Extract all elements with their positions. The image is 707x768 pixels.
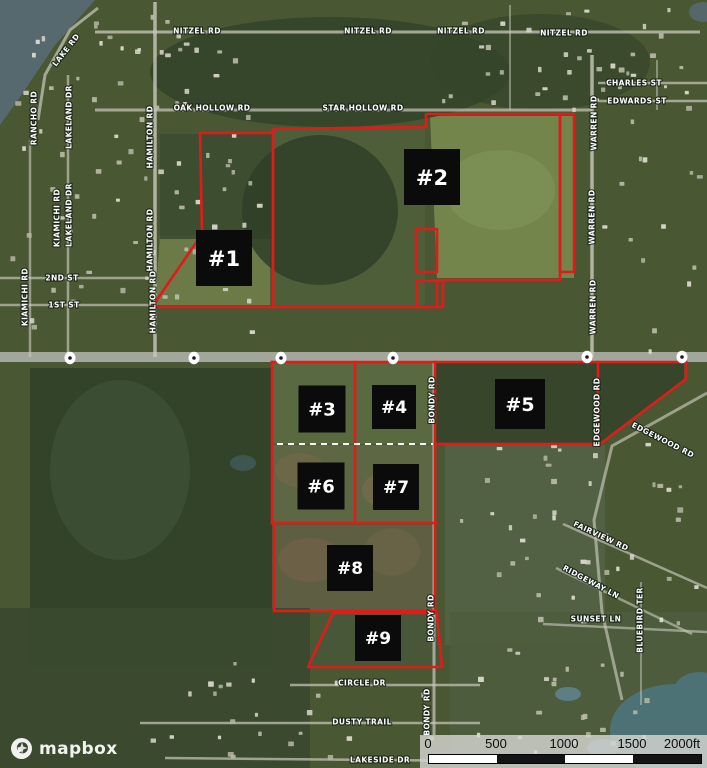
building [79,285,84,289]
building [213,692,217,696]
terrain-patch [445,150,555,230]
road-label: CIRCLE DR [338,679,386,688]
building [117,161,122,165]
building [27,233,32,238]
building [32,325,37,330]
building [583,714,588,719]
building [114,135,118,138]
building [697,175,703,179]
terrain-patch [0,0,95,125]
building [165,53,171,57]
building [151,739,156,743]
building [60,152,65,157]
building [158,170,164,175]
building [217,50,222,53]
road-label: 2ND ST [45,274,79,283]
building [586,560,591,564]
building [520,539,525,543]
building [223,187,227,191]
road-label: 1ST ST [48,301,80,310]
map-canvas[interactable]: NITZEL RDNITZEL RDNITZEL RDNITZEL RDCHAR… [0,0,707,768]
building [679,66,683,69]
building [228,159,232,163]
building [536,593,541,597]
building [657,484,663,488]
building [288,742,294,747]
building [649,349,652,354]
building [92,214,96,219]
map-overlay: NITZEL RDNITZEL RDNITZEL RDNITZEL RDCHAR… [0,0,707,768]
road-label: WARREN RD [589,280,598,335]
building [542,87,547,90]
building [526,28,531,33]
building [193,249,197,254]
building [214,74,220,77]
route-shield-icon [192,356,196,360]
building [140,117,145,122]
road-label: HAMILTON RD [146,209,155,272]
building [563,95,568,100]
building [690,171,694,175]
route-shield-icon [279,356,283,360]
building [178,48,182,52]
building [108,36,113,40]
building [179,206,184,210]
building [685,91,689,95]
building [486,72,491,76]
parcel-label: #4 [381,398,407,418]
route-shield-icon [680,355,684,359]
building [667,8,670,12]
building [51,288,56,293]
road-label: EDGEWOOD RD [630,420,695,459]
road-label: CHARLES ST [606,79,662,88]
building [497,447,503,450]
building [660,618,664,623]
building [650,53,656,58]
building [631,74,636,77]
building [552,682,557,686]
building [604,570,609,575]
road-label: NITZEL RD [344,27,392,36]
building [316,694,321,698]
building [587,49,592,53]
building [677,507,683,512]
building [544,677,549,681]
building [661,224,666,229]
road-label: BLUEBIRD TER [636,587,645,652]
building [491,100,496,105]
terrain-patch [555,687,581,701]
building [22,146,26,151]
building [230,719,235,724]
scale-tick: 1500 [618,736,647,751]
building [208,681,214,686]
building [184,43,190,46]
building [120,288,125,293]
building [593,453,598,458]
building [219,685,223,689]
building [631,53,636,57]
road-label: WARREN RD [588,190,597,245]
building [643,157,648,162]
building [257,204,263,208]
building [155,106,159,110]
building [163,295,168,298]
building [76,77,79,81]
road-label: NITZEL RD [173,27,221,36]
building [258,732,262,736]
building [515,652,520,655]
building [196,200,201,204]
terrain-patch [242,135,398,285]
building [558,449,562,452]
building [462,22,468,26]
building [135,49,141,54]
route-shield-icon [68,356,72,360]
building [620,182,625,186]
building [226,164,231,167]
building [643,24,646,29]
parcel-label: #6 [307,477,335,498]
scale-tick: 1000 [550,736,579,751]
parcel-label: #8 [337,559,363,579]
road-label: EDWARDS ST [607,97,667,106]
building [206,153,209,158]
road-label: HAMILTON RD [149,271,158,334]
building [644,698,649,703]
building [116,199,120,202]
building [151,15,154,20]
building [233,662,236,666]
building [160,50,164,55]
building [212,225,218,230]
building [597,67,603,71]
building [533,514,537,519]
building [223,288,228,291]
scale-tick: 0 [424,736,431,751]
road-label: EDGEWOOD RD [593,378,602,447]
building [133,241,138,244]
road-label: BONDY RD [427,594,436,641]
building [552,515,556,520]
road-label: NITZEL RD [540,29,588,38]
building [536,711,542,715]
building [572,108,576,112]
parcel-label: #7 [383,478,409,498]
building [620,672,623,677]
building [626,71,629,75]
parcel-label: #5 [505,394,534,416]
building [525,557,529,560]
building [507,648,512,651]
road-label: KIAMICHI RD [21,268,30,326]
scale-bar-segments [428,754,702,764]
building [639,157,642,162]
building [551,479,557,484]
building [692,266,696,270]
building [510,561,515,565]
building [307,710,313,715]
route-shield-icon [391,356,395,360]
building [449,94,453,98]
building [676,518,681,522]
building [679,485,682,488]
building [600,728,606,732]
building [15,101,21,105]
building [23,91,28,95]
building [479,45,484,48]
building [94,22,99,26]
road-label: DUSTY TRAIL [332,718,392,727]
building [630,554,634,559]
mapbox-logo-text: mapbox [39,739,118,759]
building [535,92,540,96]
building [460,519,463,523]
scale-segment [497,755,565,763]
building [478,677,484,682]
building [188,691,192,696]
scale-tick: 2000ft [664,736,700,751]
building [177,161,181,166]
building [246,115,251,120]
building [252,679,255,683]
building [39,129,42,133]
route-shield-icon [585,355,589,359]
building [566,12,571,15]
scale-bar: 0500100015002000ft [420,735,707,768]
building [564,52,568,57]
building [584,10,589,13]
building [629,238,633,242]
building [232,170,235,175]
building [616,567,619,572]
building [653,482,656,487]
building [94,25,98,29]
mapbox-attribution[interactable]: mapbox [9,736,118,761]
building [485,478,490,483]
building [687,281,691,286]
building [677,621,680,625]
building [247,299,251,304]
building [486,45,491,50]
building [659,33,664,38]
building [553,678,557,682]
building [228,752,234,757]
building [218,736,221,740]
building [567,70,572,75]
road-label: KIAMICHI RD [53,189,62,247]
building [442,99,445,103]
parcel-label: #9 [365,629,391,649]
building [165,20,169,24]
building [30,318,34,323]
building [121,46,124,50]
parcel-label: #1 [208,247,240,271]
building [144,176,147,180]
scale-tick: 500 [485,736,507,751]
road-label: LAKELAND DR [65,85,74,149]
building [250,330,255,334]
building [175,190,179,194]
building [500,70,504,75]
road-label: NITZEL RD [437,27,485,36]
building [118,81,124,85]
parcel-label: #3 [308,400,336,421]
building [233,58,238,63]
building [601,664,605,667]
building [490,512,494,515]
road-label: BONDY RD [423,688,432,735]
building [42,36,45,41]
building [601,88,605,92]
building [299,732,303,735]
building [99,41,102,46]
building [509,525,512,530]
building [86,271,92,274]
building [500,22,505,26]
scale-segment [565,755,633,763]
building [175,294,179,299]
building [631,120,634,125]
building [242,223,246,228]
building [226,683,231,687]
building [75,194,80,199]
building [633,710,638,714]
road-label: RANCHO RD [30,91,39,145]
mapbox-logo-icon [9,736,34,761]
building [184,248,188,252]
road-label: STAR HOLLOW RD [323,104,404,113]
building [686,106,692,111]
building [652,328,657,333]
road-label: LAKESIDE DR [350,756,410,765]
road-label: SUNSET LN [571,615,622,624]
building [577,56,582,60]
building [194,48,199,53]
building [552,510,556,515]
terrain-patch [230,455,256,471]
building [497,572,502,577]
terrain-patch [689,2,707,22]
parcel-label: #2 [416,166,448,190]
building [589,481,592,486]
road-label: OAK HOLLOW RD [174,104,251,113]
building [694,585,698,589]
building [664,85,667,88]
building [611,64,616,69]
building [602,225,607,228]
building [10,256,15,261]
building [255,713,258,717]
building [36,40,40,44]
building [170,735,174,739]
building [328,755,333,760]
building [544,456,548,461]
building [248,181,252,186]
road-label: WARREN RD [590,96,599,151]
building [566,667,569,672]
scale-segment [633,755,701,763]
road-label: HAMILTON RD [146,106,155,169]
terrain-patch [50,380,190,560]
building [646,443,652,447]
road-label: LAKELAND DR [65,183,74,247]
building [92,97,97,102]
building [347,736,353,741]
building [572,596,575,600]
building [641,258,645,263]
building [667,577,672,581]
building [667,488,672,492]
scale-segment [429,755,497,763]
building [185,89,190,94]
building [96,169,102,174]
building [538,617,544,622]
building [546,464,552,467]
building [619,68,625,73]
building [32,53,36,58]
building [128,149,133,154]
road-label: BONDY RD [428,376,437,423]
building [538,67,542,72]
building [49,86,54,90]
